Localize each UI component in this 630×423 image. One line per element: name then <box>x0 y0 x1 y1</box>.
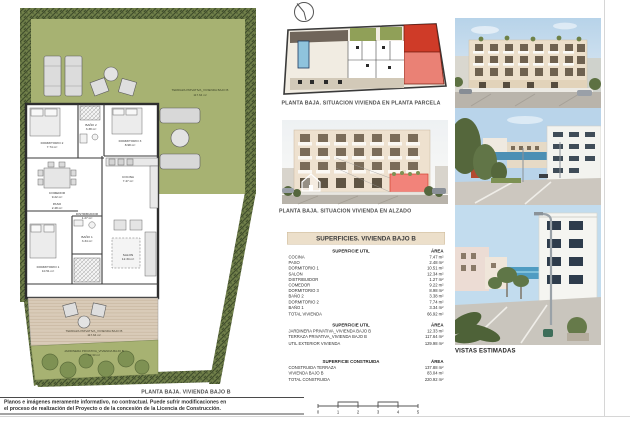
table-row: TERRAZA PRIVATIVA_VIVIENDA BAJO B117.64 … <box>287 334 445 340</box>
section-header: SUPERFICIE CONSTRUIDA <box>289 359 414 364</box>
plan-sheet-page: TERRAZA PRIVATIVA_VIVIENDA BAJO B 117.64… <box>0 0 630 423</box>
disclaimer: Planos e imágenes meramente informativo,… <box>0 397 298 416</box>
scale-label: 3 <box>377 410 380 415</box>
photo-street-view-sea <box>455 108 601 205</box>
site-plan-drawing <box>278 0 452 100</box>
disclaimer-line-2: el proceso de realización del Proyecto o… <box>4 406 300 412</box>
site-plan-caption: PLANTA BAJA. SITUACION VIVIENDA EN PLANT… <box>272 100 450 106</box>
jardinera-area-value: 12.33 m² <box>88 353 100 357</box>
scale-label: 5 <box>417 410 420 415</box>
table-row: BAÑO 13.34 m² <box>287 305 445 311</box>
svg-text:7.74 m²: 7.74 m² <box>47 145 58 149</box>
scale-label: 2 <box>357 410 360 415</box>
table-row: TOTAL VIVIENDA66.92 m² <box>287 312 445 318</box>
garden-terrace-area-value: 117.64 m² <box>193 93 206 97</box>
jardinera-garden-strip: JARDINERA PRIVATIVA_VIVIENDA BAJO B 12.3… <box>31 340 158 380</box>
svg-text:1.27 m²: 1.27 m² <box>82 216 93 220</box>
page-trim-line-horizontal <box>0 416 630 417</box>
svg-text:3.34 m²: 3.34 m² <box>82 239 93 243</box>
table-section-construida: SUPERFICIE CONSTRUIDA ÁREA CONSTRUIDA TE… <box>287 359 445 383</box>
table-row: VIVIENDA BAJO B83.04 m² <box>287 371 445 377</box>
highlighted-unit-pink <box>404 52 444 84</box>
table-row: UTIL EXTERIOR VIVIENDA129.98 m² <box>287 341 445 347</box>
area-header: ÁREA <box>414 249 444 254</box>
elevation-drawing <box>278 118 452 208</box>
pool <box>298 41 309 68</box>
surfaces-table-title: SUPERFICIES. VIVIENDA BAJO B <box>287 232 445 245</box>
photo-street-view-building <box>455 205 601 345</box>
table-section-util: SUPERFICIE UTIL ÁREA COCINA7.47 m²PASO2.… <box>287 249 445 318</box>
floor-plan-drawing: TERRAZA PRIVATIVA_VIVIENDA BAJO B 117.64… <box>14 6 260 392</box>
north-compass-icon <box>295 3 314 22</box>
table-section-exterior: SUPERFICIE UTIL ÁREA JARDINERA PRIVATIVA… <box>287 323 445 347</box>
deck-terrace: TERRAZA PRIVATIVA_VIVIENDA BAJO B 117.64… <box>28 298 158 346</box>
svg-text:7.47 m²: 7.47 m² <box>123 179 134 183</box>
table-row: TOTAL CONSTRUIDA220.92 m² <box>287 377 445 383</box>
scale-label: 4 <box>397 410 400 415</box>
svg-text:3.38 m²: 3.38 m² <box>86 127 97 131</box>
svg-text:9.22 m²: 9.22 m² <box>52 195 63 199</box>
scale-label: 0 <box>317 410 320 415</box>
floor-plan-caption: PLANTA BAJA. VIVIENDA BAJO B <box>106 389 266 395</box>
photo-building-render <box>455 18 601 108</box>
section-header: SUPERFICIE UTIL <box>289 249 414 254</box>
garden-terrace-label: TERRAZA PRIVATIVA_VIVIENDA BAJO B <box>172 88 229 92</box>
highlighted-unit-red <box>404 24 440 52</box>
page-trim-line-vertical <box>604 0 605 417</box>
svg-text:10.51 m²: 10.51 m² <box>42 269 54 273</box>
elevation-highlight-unit <box>390 174 428 193</box>
area-header: ÁREA <box>414 323 444 328</box>
area-header: ÁREA <box>414 359 444 364</box>
svg-text:2.48 m²: 2.48 m² <box>52 206 63 210</box>
deck-terrace-area-value: 117.64 m² <box>87 333 100 337</box>
scale-bar: 0 1 2 3 4 5 <box>316 399 422 416</box>
section-header: SUPERFICIE UTIL <box>289 323 414 328</box>
parcel-plan <box>284 24 446 94</box>
svg-text:12.34 m²: 12.34 m² <box>122 257 134 261</box>
svg-text:8.98 m²: 8.98 m² <box>125 143 136 147</box>
photos-caption: VISTAS ESTIMADAS <box>455 347 601 354</box>
scale-label: 1 <box>337 410 340 415</box>
surfaces-table: SUPERFICIES. VIVIENDA BAJO B SUPERFICIE … <box>287 232 445 388</box>
elevation-caption: PLANTA BAJA. SITUACION VIVIENDA EN ALZAD… <box>272 208 457 214</box>
